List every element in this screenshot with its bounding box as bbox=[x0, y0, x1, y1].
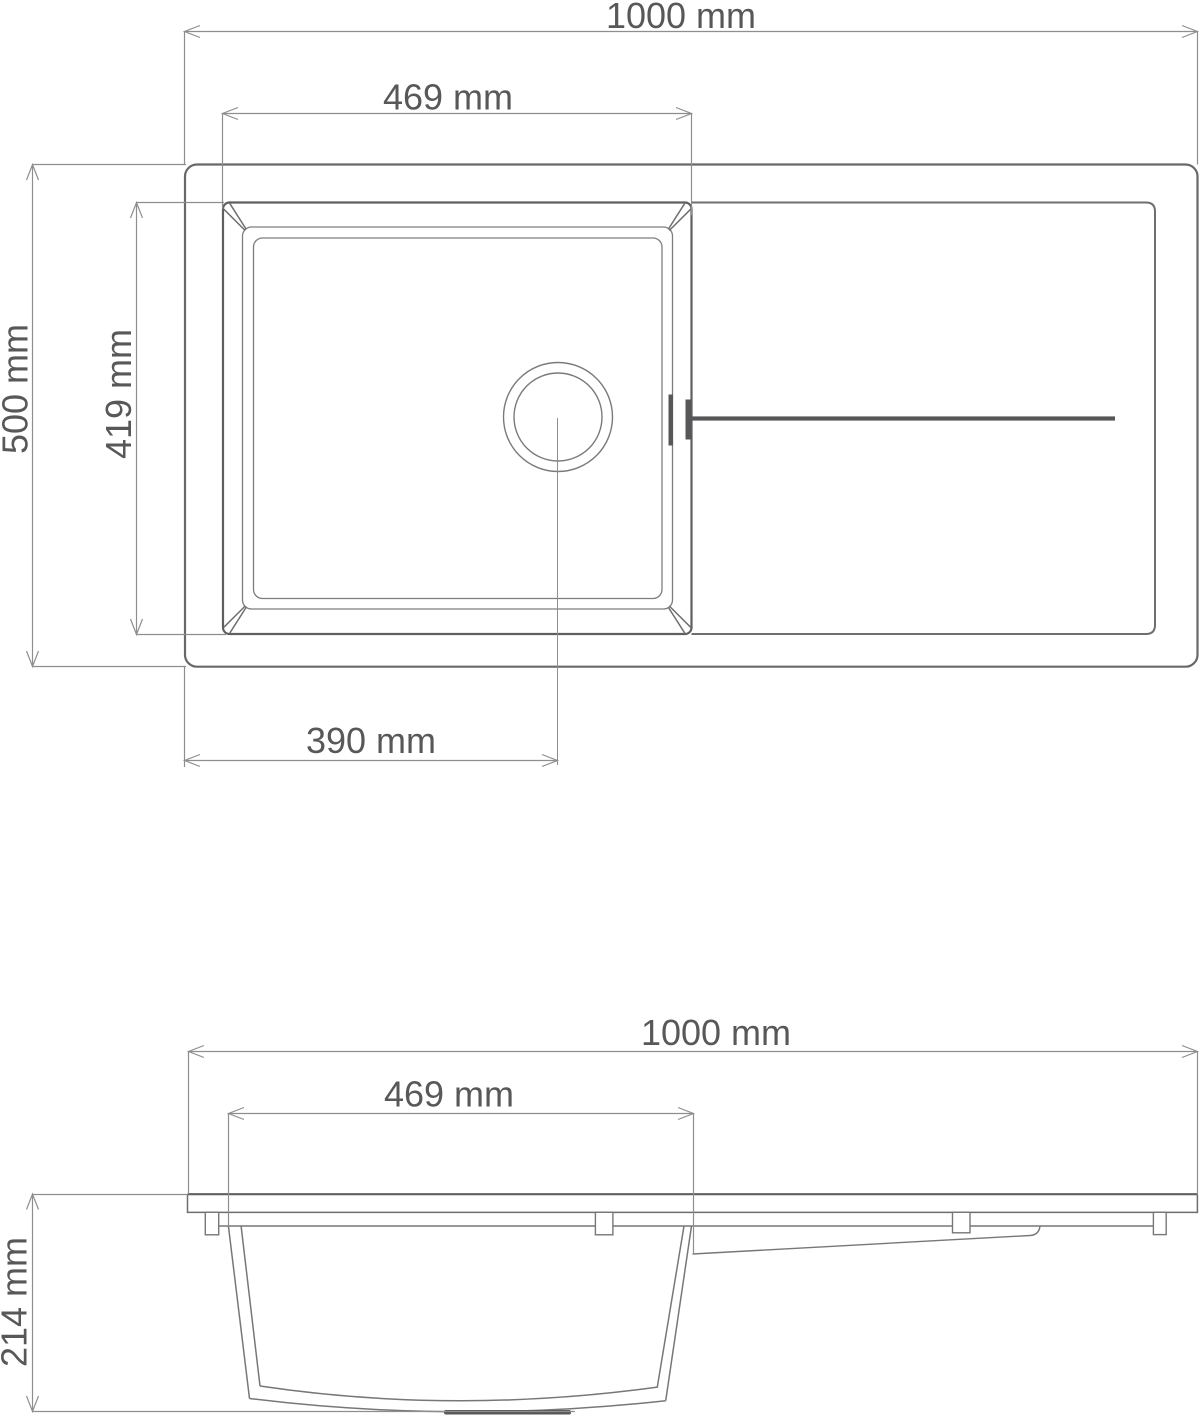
svg-text:469 mm: 469 mm bbox=[383, 77, 513, 118]
svg-text:469 mm: 469 mm bbox=[384, 1074, 514, 1115]
svg-text:1000 mm: 1000 mm bbox=[606, 0, 756, 36]
svg-text:1000 mm: 1000 mm bbox=[641, 1012, 791, 1053]
svg-text:390 mm: 390 mm bbox=[306, 720, 436, 761]
svg-text:500 mm: 500 mm bbox=[0, 324, 36, 454]
svg-text:419 mm: 419 mm bbox=[98, 329, 139, 459]
svg-text:214 mm: 214 mm bbox=[0, 1237, 35, 1367]
